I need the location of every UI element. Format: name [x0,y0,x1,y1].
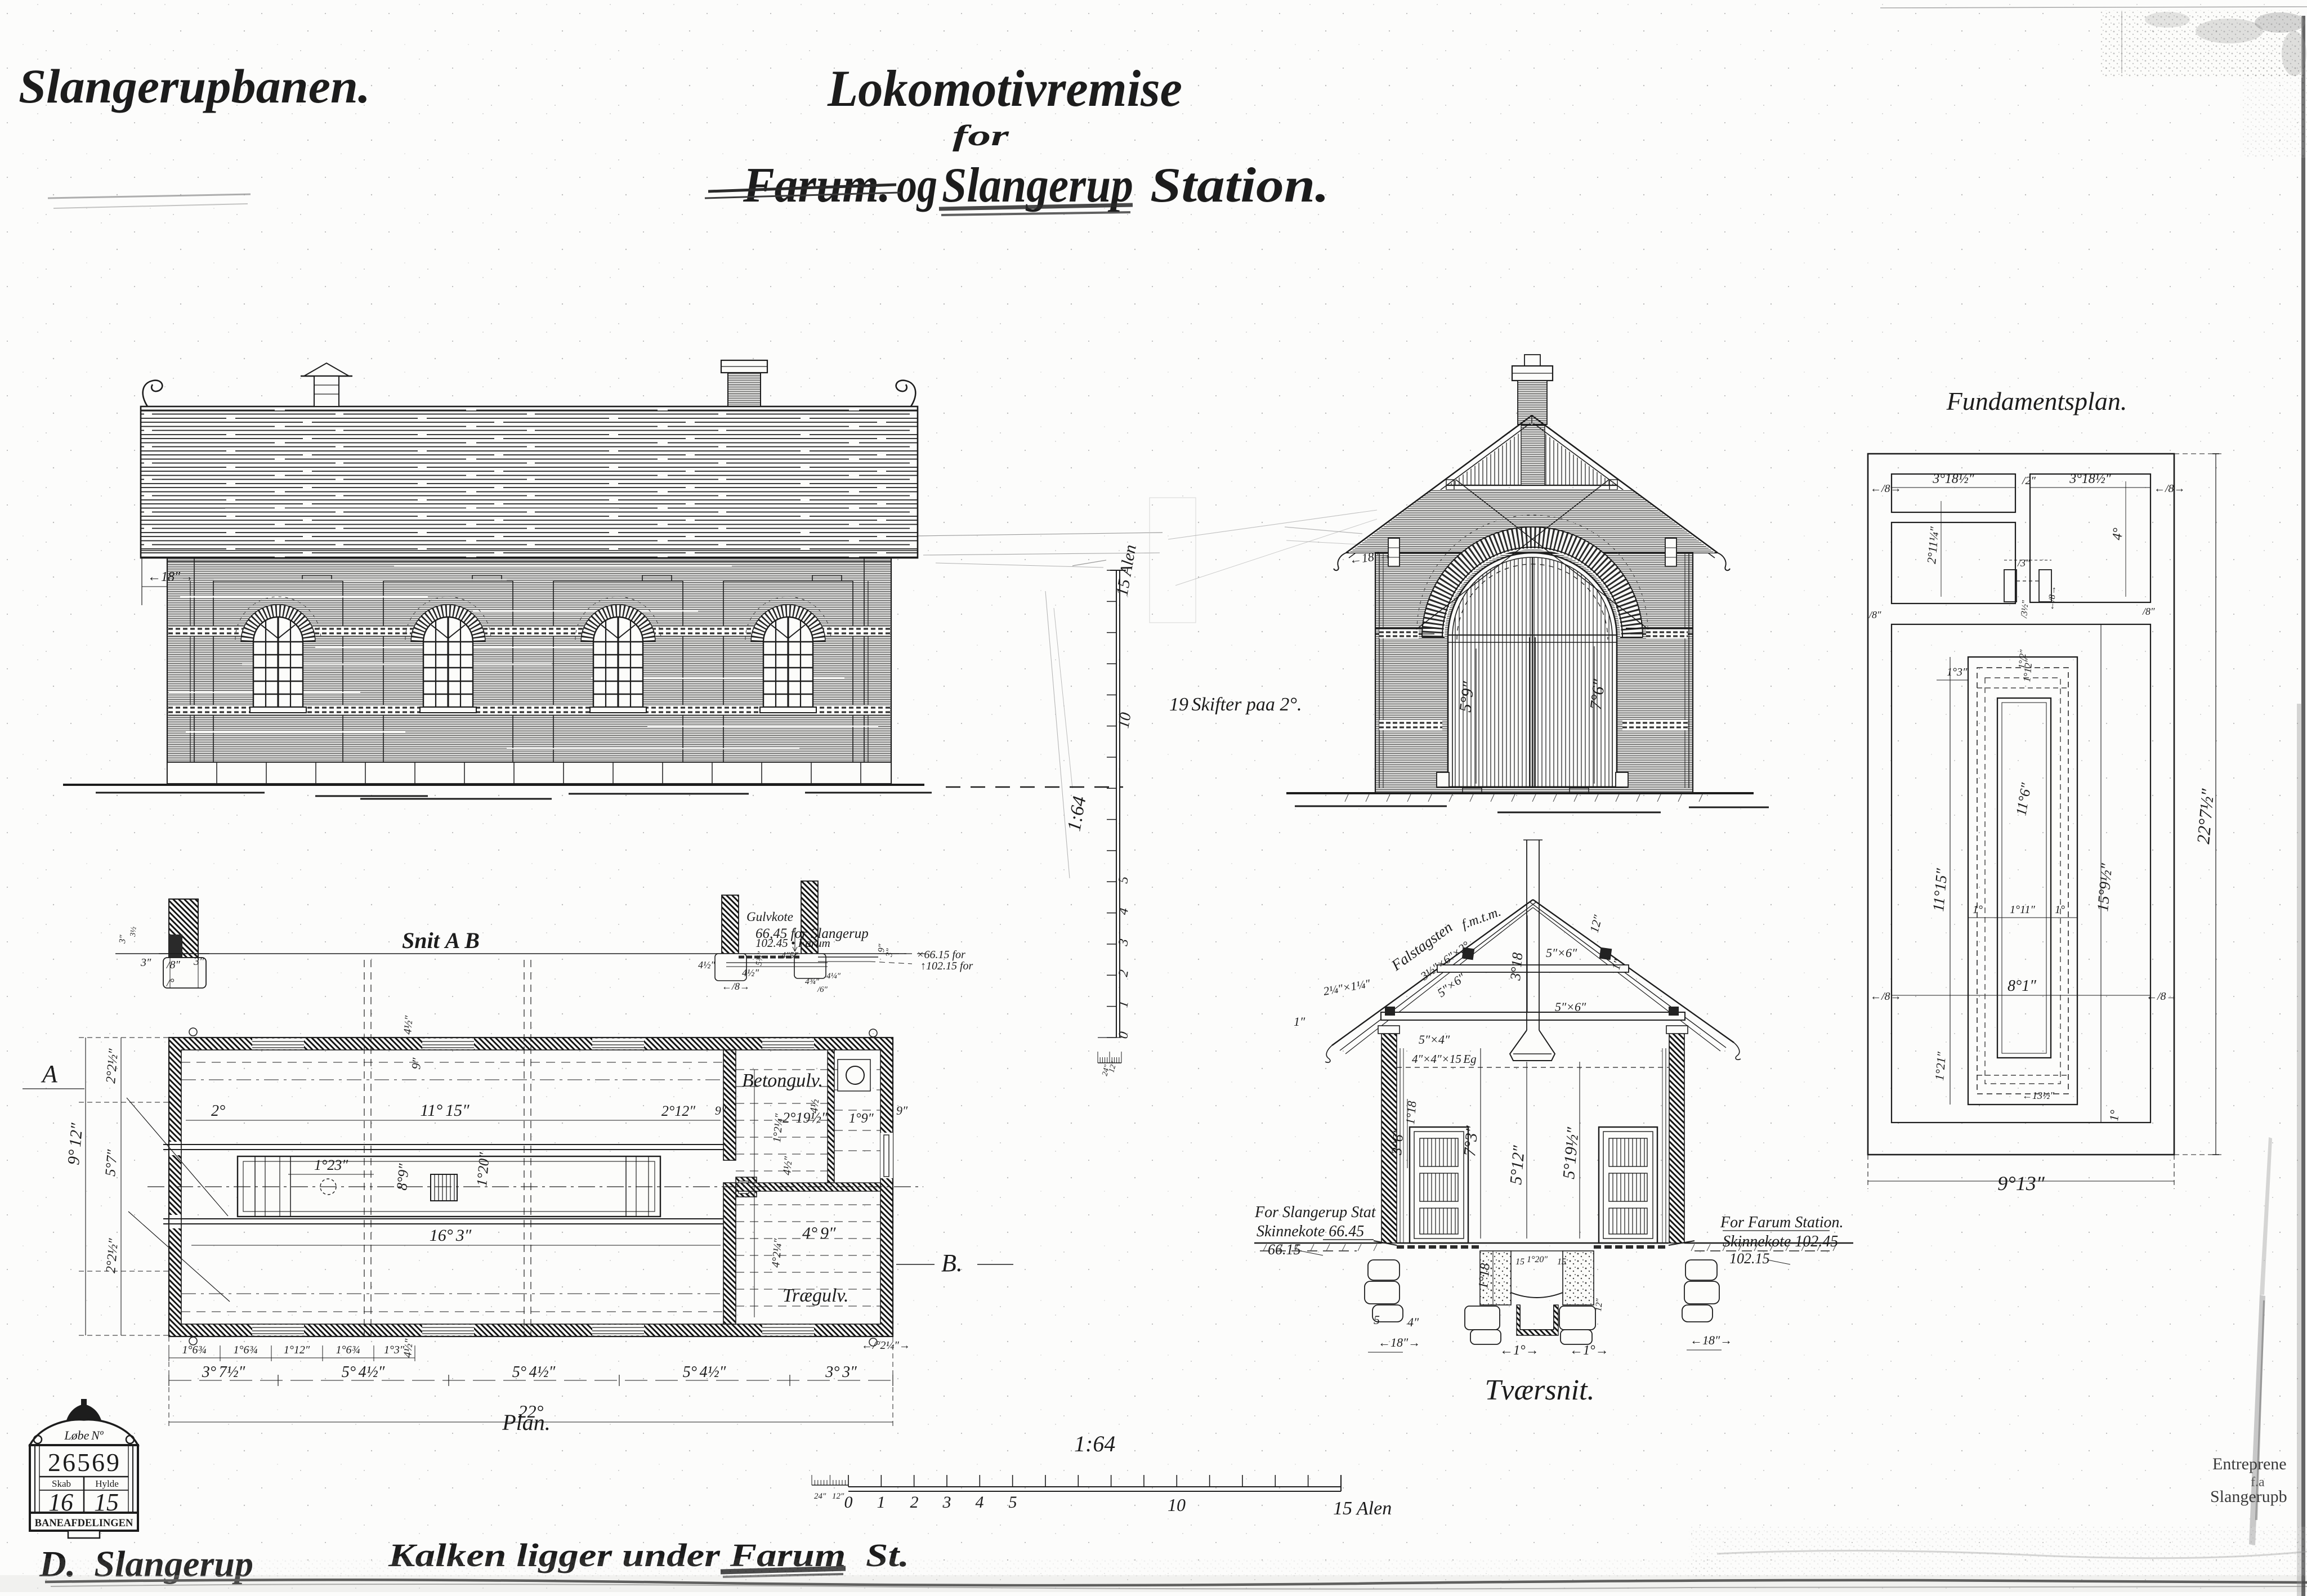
svg-text:5: 5 [1374,1313,1380,1327]
svg-text:←1°→: ←1°→ [1500,1343,1539,1358]
svg-text:5°7″: 5°7″ [102,1148,120,1177]
svg-text:1°: 1° [2107,1109,2122,1121]
svg-text:26569: 26569 [48,1448,121,1477]
svg-text:1°6¾: 1°6¾ [336,1344,360,1356]
svg-text:5″×6″: 5″×6″ [1555,1000,1586,1014]
svg-text:11° 15″: 11° 15″ [420,1101,470,1120]
svg-text:↑102.15 for: ↑102.15 for [920,960,973,972]
svg-text:5°12″: 5°12″ [1506,1145,1528,1186]
svg-text:0: 0 [844,1493,853,1512]
svg-text:/3½″: /3½″ [2019,600,2031,619]
svg-text:←/°2¼″→: ←/°2¼″→ [861,1339,910,1352]
svg-text:Slangerupb: Slangerupb [2210,1487,2287,1506]
svg-text:BANEAFDELINGEN: BANEAFDELINGEN [35,1518,133,1529]
svg-text:4″: 4″ [1407,1315,1419,1329]
svg-text:10: 10 [1115,711,1134,730]
svg-text:1°6¾: 1°6¾ [234,1344,258,1356]
svg-text:Skinnekote 66.45: Skinnekote 66.45 [1257,1223,1364,1240]
svg-text:9°13″: 9°13″ [1997,1172,2045,1195]
svg-text:3°18: 3°18 [1507,952,1526,982]
svg-text:Station.: Station. [1150,158,1329,213]
svg-text:og: og [897,158,937,213]
svg-text:4½″: 4½″ [781,1156,795,1176]
svg-text:←13½″: ←13½″ [2022,1090,2055,1101]
svg-text:7°6″: 7°6″ [1586,678,1608,711]
svg-text:1°6¾: 1°6¾ [182,1344,207,1356]
svg-text:For Farum Station.: For Farum Station. [1720,1214,1844,1231]
svg-text:←/8→: ←/8→ [722,981,750,992]
svg-text:3° 7½″: 3° 7½″ [202,1363,245,1381]
svg-text:5° 4½″: 5° 4½″ [512,1363,556,1381]
svg-text:1°20″: 1°20″ [1527,1255,1548,1264]
svg-text:9″: 9″ [896,1103,908,1117]
svg-text:Α: Α [41,1060,58,1088]
svg-text:66.15: 66.15 [1268,1241,1301,1258]
svg-text:1°11″: 1°11″ [2010,904,2036,916]
svg-text:8°1″: 8°1″ [2008,977,2036,995]
svg-text:Tværsnit.: Tværsnit. [1485,1374,1594,1406]
svg-text:For Slangerup Stat: For Slangerup Stat [1254,1204,1376,1221]
svg-text:4″×4″×15 Εg: 4″×4″×15 Εg [1412,1052,1477,1066]
svg-text:12″: 12″ [832,1492,844,1501]
svg-text:Skab: Skab [52,1478,71,1489]
svg-text:9″: 9″ [409,1057,424,1070]
svg-text:1″: 1″ [1294,1014,1305,1029]
svg-text:3½: 3½ [129,926,138,937]
svg-text:/2″: /2″ [2022,475,2036,487]
svg-text:1°20″: 1°20″ [473,1151,493,1187]
svg-text:←/8→: ←/8→ [1870,482,1902,495]
svg-text:←/8→: ←/8→ [2146,990,2178,1003]
svg-text:1°3″: 1°3″ [384,1344,405,1356]
svg-text:3°18½″: 3°18½″ [2069,472,2112,486]
svg-text:1°23″: 1°23″ [314,1157,348,1173]
svg-text:4: 4 [976,1493,984,1512]
svg-text:1°: 1° [1973,904,1983,916]
svg-text:2: 2 [910,1493,919,1512]
svg-text:2°: 2° [211,1102,225,1120]
svg-text:3: 3 [942,1493,951,1512]
svg-text:Betongulv.: Betongulv. [742,1070,823,1091]
svg-text:3° 3″: 3° 3″ [825,1363,857,1381]
svg-text:Lokomotivremise: Lokomotivremise [827,60,1182,117]
svg-text:4″5‴: 4″5‴ [781,951,799,960]
svg-text:7°3″: 7°3″ [1460,1125,1482,1157]
svg-text:102.15: 102.15 [1729,1250,1770,1267]
svg-text:8°9″: 8°9″ [394,1163,412,1191]
svg-text:3″: 3″ [140,956,151,969]
svg-text:←1°→: ←1°→ [1570,1343,1609,1358]
svg-text:Trægulv.: Trægulv. [783,1285,848,1306]
svg-text:1: 1 [877,1493,886,1512]
svg-text:←18″→: ←18″→ [1378,1335,1420,1349]
svg-text:1:64: 1:64 [1074,1431,1115,1456]
svg-text:2°19½″: 2°19½″ [783,1110,828,1126]
svg-text:15: 15 [1557,1257,1566,1267]
svg-text:Løbe Nº: Løbe Nº [64,1428,104,1442]
svg-text:24″: 24″ [814,1492,826,1501]
svg-text:3°6″: 3°6″ [1388,1127,1407,1156]
svg-text:15: 15 [1515,1257,1524,1267]
svg-text:5″×6″: 5″×6″ [1546,946,1577,960]
svg-text:Entreprene: Entreprene [2212,1455,2287,1473]
svg-text:12″: 12″ [1594,1298,1604,1312]
svg-text:4½″: 4½″ [698,959,716,971]
svg-text:9° 12″: 9° 12″ [64,1122,86,1166]
svg-text:/8″: /8″ [1868,609,1881,620]
svg-text:/°: /° [166,977,175,989]
svg-text:4°2¼″: 4°2¼″ [770,1238,784,1268]
svg-text:Gulvkote: Gulvkote [746,910,793,924]
svg-text:9″: 9″ [715,1103,727,1117]
svg-text:/3″: /3″ [2017,557,2030,569]
svg-text:1°9″: 1°9″ [849,1111,874,1126]
svg-text:1°/2″: 1°/2″ [2017,649,2028,669]
svg-text:19 Skifter paa 2°.: 19 Skifter paa 2°. [1169,694,1302,715]
svg-text:15 Αlen: 15 Αlen [1333,1498,1392,1519]
svg-text:Β.: Β. [941,1249,963,1277]
svg-text:1°2¼″: 1°2¼″ [771,1113,785,1143]
svg-text:3°18½″: 3°18½″ [1932,472,1975,486]
svg-text:5″×4″: 5″×4″ [1419,1032,1450,1047]
svg-text:4¼″: 4¼″ [826,972,841,981]
svg-text:4½″: 4½″ [401,1015,415,1035]
svg-text:Slangerupbanen.: Slangerupbanen. [19,59,370,113]
svg-text:1°18: 1°18 [1476,1263,1493,1290]
svg-text:5° 4½″: 5° 4½″ [342,1363,385,1381]
svg-text:←/8→: ←/8→ [1870,990,1902,1003]
svg-text:2°12″: 2°12″ [661,1103,696,1119]
svg-text:Snit Α Β: Snit Α Β [402,928,480,953]
svg-text:5°9″: 5°9″ [1456,680,1478,713]
svg-text:←18″→: ←18″→ [1690,1333,1732,1347]
svg-text:/8″: /8″ [2142,606,2155,617]
svg-text:3″: 3″ [193,955,204,968]
svg-text:4° 9″: 4° 9″ [802,1224,836,1242]
svg-text:5: 5 [1009,1493,1017,1512]
svg-text:Plan.: Plan. [502,1410,551,1435]
svg-text:5° 4½″: 5° 4½″ [683,1363,726,1381]
svg-text:4½: 4½ [808,1099,821,1114]
svg-text:2°2½″: 2°2½″ [104,1237,121,1274]
svg-text:1°12″: 1°12″ [284,1344,310,1356]
svg-text:×66.15 for: ×66.15 for [916,949,965,961]
svg-text:/6″: /6″ [817,985,828,994]
svg-text:Hylde: Hylde [95,1478,119,1489]
svg-text:4°: 4° [2110,527,2126,540]
svg-text:Skinnekote 102.45: Skinnekote 102.45 [1723,1233,1838,1250]
svg-text:10: 10 [1168,1495,1186,1515]
svg-text:3″: 3″ [884,948,895,958]
svg-text:1°18: 1°18 [1403,1101,1419,1125]
svg-text:←/8→: ←/8→ [2154,482,2185,495]
svg-text:for: for [953,120,1009,152]
svg-text:←18″→: ←18″→ [147,570,194,584]
svg-text:1°: 1° [2055,904,2065,916]
svg-text:/8″: /8″ [166,959,181,971]
svg-text:4½″: 4½″ [742,967,759,978]
svg-text:2°2½″: 2°2½″ [104,1048,121,1084]
svg-text:Fundamentsplan.: Fundamentsplan. [1946,387,2127,415]
svg-text:1°21″: 1°21″ [1932,1051,1948,1081]
svg-text:16° 3″: 16° 3″ [430,1226,472,1245]
svg-text:3″: 3″ [118,935,128,944]
svg-text:1°3″: 1°3″ [1947,666,1968,678]
